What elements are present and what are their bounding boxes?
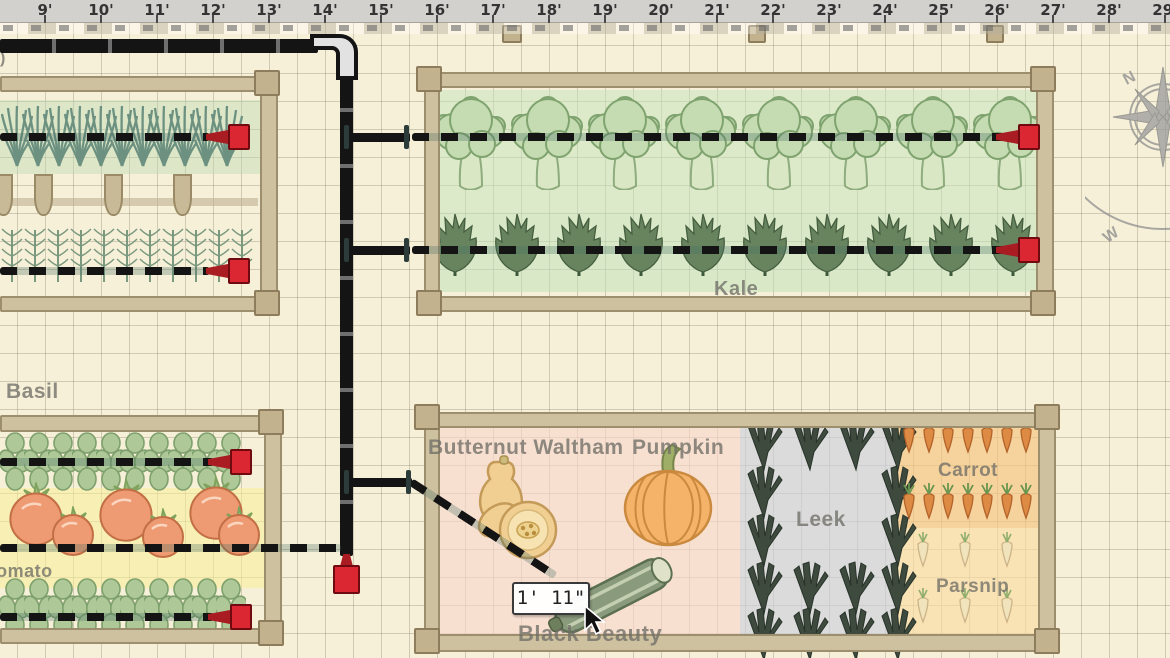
ruler-foot-tick	[156, 15, 158, 23]
drip-emitter[interactable]	[230, 604, 252, 630]
bed-frame-rail[interactable]	[0, 76, 278, 92]
bed-corner-post[interactable]	[258, 409, 284, 435]
mouse-cursor	[582, 604, 610, 636]
bed-corner-post[interactable]	[1034, 628, 1060, 654]
ruler-foot-tick	[268, 15, 270, 23]
broccoli-plant-icon[interactable]	[811, 92, 897, 190]
pipe-connector-fitting	[344, 238, 349, 262]
drip-irrigation-line[interactable]	[412, 133, 1014, 141]
pipe-elbow-fitting[interactable]	[310, 28, 360, 80]
ruler-foot-tick	[212, 15, 214, 23]
broccoli-plant-icon[interactable]	[734, 92, 820, 190]
bed-label-parsnip: Parsnip	[936, 576, 1009, 598]
seedling-plant-icon[interactable]	[184, 224, 208, 284]
seedling-plant-icon[interactable]	[161, 224, 185, 284]
carrot-plant-icon[interactable]	[900, 482, 918, 520]
drip-emitter[interactable]	[228, 124, 250, 150]
bed-frame-rail[interactable]	[0, 415, 282, 432]
parsnip-plant-icon[interactable]	[998, 530, 1016, 568]
compass-rose-icon: N W	[1085, 55, 1170, 265]
pipe-connector-fitting	[404, 238, 409, 262]
bed-corner-post[interactable]	[1030, 290, 1056, 316]
broccoli-plant-icon[interactable]	[657, 92, 743, 190]
seedling-plant-icon[interactable]	[92, 224, 116, 284]
bed-corner-post[interactable]	[1030, 66, 1056, 92]
bed-frame-rail[interactable]	[0, 628, 282, 644]
kale-plant-icon[interactable]	[860, 208, 918, 278]
bed-label-kale: Kale	[714, 278, 758, 301]
bed-frame-rail[interactable]	[424, 72, 1052, 88]
ruler-half-foot-dashes	[3, 25, 1170, 31]
broccoli-plant-icon[interactable]	[580, 92, 666, 190]
ruler-foot-tick	[828, 15, 830, 23]
ruler-foot-tick	[604, 15, 606, 23]
pipe-connector-fitting	[406, 470, 411, 494]
ruler-foot-tick	[772, 15, 774, 23]
bed-frame-rail[interactable]	[1038, 412, 1056, 652]
ruler-foot-tick	[884, 15, 886, 23]
drip-emitter[interactable]	[228, 258, 250, 284]
branch-pipe[interactable]	[350, 478, 412, 487]
support-stake[interactable]	[34, 174, 53, 216]
bed-corner-post[interactable]	[258, 620, 284, 646]
support-stake[interactable]	[104, 174, 123, 216]
flush-valve-cap[interactable]	[333, 565, 360, 594]
ruler-foot-tick	[492, 15, 494, 23]
branch-pipe[interactable]	[350, 246, 410, 255]
ruler-foot-tick	[380, 15, 382, 23]
bed-label-carrot: Carrot	[938, 460, 998, 482]
bed-label-pumpkin: Pumpkin	[632, 436, 724, 460]
seedling-plant-icon[interactable]	[138, 224, 162, 284]
broccoli-plant-icon[interactable]	[503, 92, 589, 190]
kale-plant-icon[interactable]	[922, 208, 980, 278]
carrot-plant-icon[interactable]	[939, 482, 957, 520]
ruler-foot-tick	[1052, 15, 1054, 23]
branch-pipe[interactable]	[350, 133, 410, 142]
support-stake[interactable]	[173, 174, 192, 216]
drip-irrigation-line[interactable]	[0, 544, 341, 552]
parsnip-plant-icon[interactable]	[914, 530, 932, 568]
drip-irrigation-line[interactable]	[412, 246, 1014, 254]
drip-irrigation-line[interactable]	[0, 133, 210, 141]
pipe-connector-fitting	[344, 470, 349, 494]
bed-label-butternut-waltham: Butternut Waltham	[428, 436, 624, 460]
bed-corner-post[interactable]	[254, 70, 280, 96]
seedling-plant-icon[interactable]	[46, 224, 70, 284]
ruler-foot-tick	[1164, 15, 1166, 23]
ruler-foot-tick	[996, 15, 998, 23]
bed-label-leek: Leek	[796, 508, 846, 532]
pipe-connector-fitting	[344, 125, 349, 149]
ruler-foot-tick	[100, 15, 102, 23]
kale-plant-icon[interactable]	[674, 208, 732, 278]
ruler-foot-tick	[548, 15, 550, 23]
pipe-connector-fitting	[404, 125, 409, 149]
ruler-foot-tick	[436, 15, 438, 23]
seedling-plant-icon[interactable]	[0, 224, 24, 284]
bed-frame-rail[interactable]	[424, 72, 440, 312]
carrot-plant-icon[interactable]	[920, 482, 938, 520]
garden-planner-canvas[interactable]: 9'10'11'12'13'14'15'16'17'18'19'20'21'22…	[0, 0, 1170, 658]
kale-plant-icon[interactable]	[550, 208, 608, 278]
drip-emitter[interactable]	[1018, 237, 1040, 263]
seedling-plant-icon[interactable]	[115, 224, 139, 284]
carrot-plant-icon[interactable]	[1017, 482, 1035, 520]
svg-text:W: W	[1100, 224, 1123, 247]
drip-emitter[interactable]	[1018, 124, 1040, 150]
ruler-foot-tick	[660, 15, 662, 23]
ruler-feet: 9'10'11'12'13'14'15'16'17'18'19'20'21'22…	[0, 0, 1170, 23]
drip-irrigation-line[interactable]	[0, 267, 210, 275]
tomato-plant-icon[interactable]	[138, 508, 188, 562]
bed-corner-post[interactable]	[416, 66, 442, 92]
bed-corner-post[interactable]	[414, 628, 440, 654]
bed-label-tomato: Tomato	[0, 561, 53, 582]
carrot-plant-icon[interactable]	[959, 482, 977, 520]
drip-irrigation-line[interactable]	[0, 613, 214, 621]
carrot-plant-icon[interactable]	[998, 482, 1016, 520]
seedling-plant-icon[interactable]	[69, 224, 93, 284]
bed-corner-post[interactable]	[414, 404, 440, 430]
broccoli-plant-icon[interactable]	[888, 92, 974, 190]
ruler-foot-tick	[940, 15, 942, 23]
ruler-foot-label: 29'	[1145, 1, 1170, 19]
kale-plant-icon[interactable]	[488, 208, 546, 278]
bed-frame-rail[interactable]	[0, 296, 278, 312]
carrot-plant-icon[interactable]	[978, 482, 996, 520]
ruler-foot-tick	[44, 15, 46, 23]
parsnip-plant-icon[interactable]	[956, 530, 974, 568]
bed-corner-post[interactable]	[1034, 404, 1060, 430]
bed-corner-post[interactable]	[254, 290, 280, 316]
bed-label-basil: Basil	[6, 380, 59, 404]
ruler-foot-tick	[716, 15, 718, 23]
bed-frame-rail[interactable]	[260, 76, 278, 312]
main-supply-pipe[interactable]	[0, 39, 318, 53]
drip-emitter[interactable]	[230, 449, 252, 475]
kale-plant-icon[interactable]	[798, 208, 856, 278]
ruler-foot-tick	[1108, 15, 1110, 23]
measurement-tooltip: 1' 11"	[512, 582, 590, 615]
bed-corner-post[interactable]	[416, 290, 442, 316]
bed-frame-rail[interactable]	[264, 415, 282, 646]
bed-frame-rail[interactable]	[424, 412, 1056, 428]
kale-plant-icon[interactable]	[612, 208, 670, 278]
svg-text:N: N	[1120, 68, 1138, 88]
parsnip-plant-icon[interactable]	[914, 586, 932, 624]
drip-irrigation-line[interactable]	[0, 458, 214, 466]
kale-plant-icon[interactable]	[736, 208, 794, 278]
bed-frame-rail[interactable]	[1036, 72, 1054, 312]
seedling-plant-icon[interactable]	[23, 224, 47, 284]
ruler-foot-tick	[324, 15, 326, 23]
